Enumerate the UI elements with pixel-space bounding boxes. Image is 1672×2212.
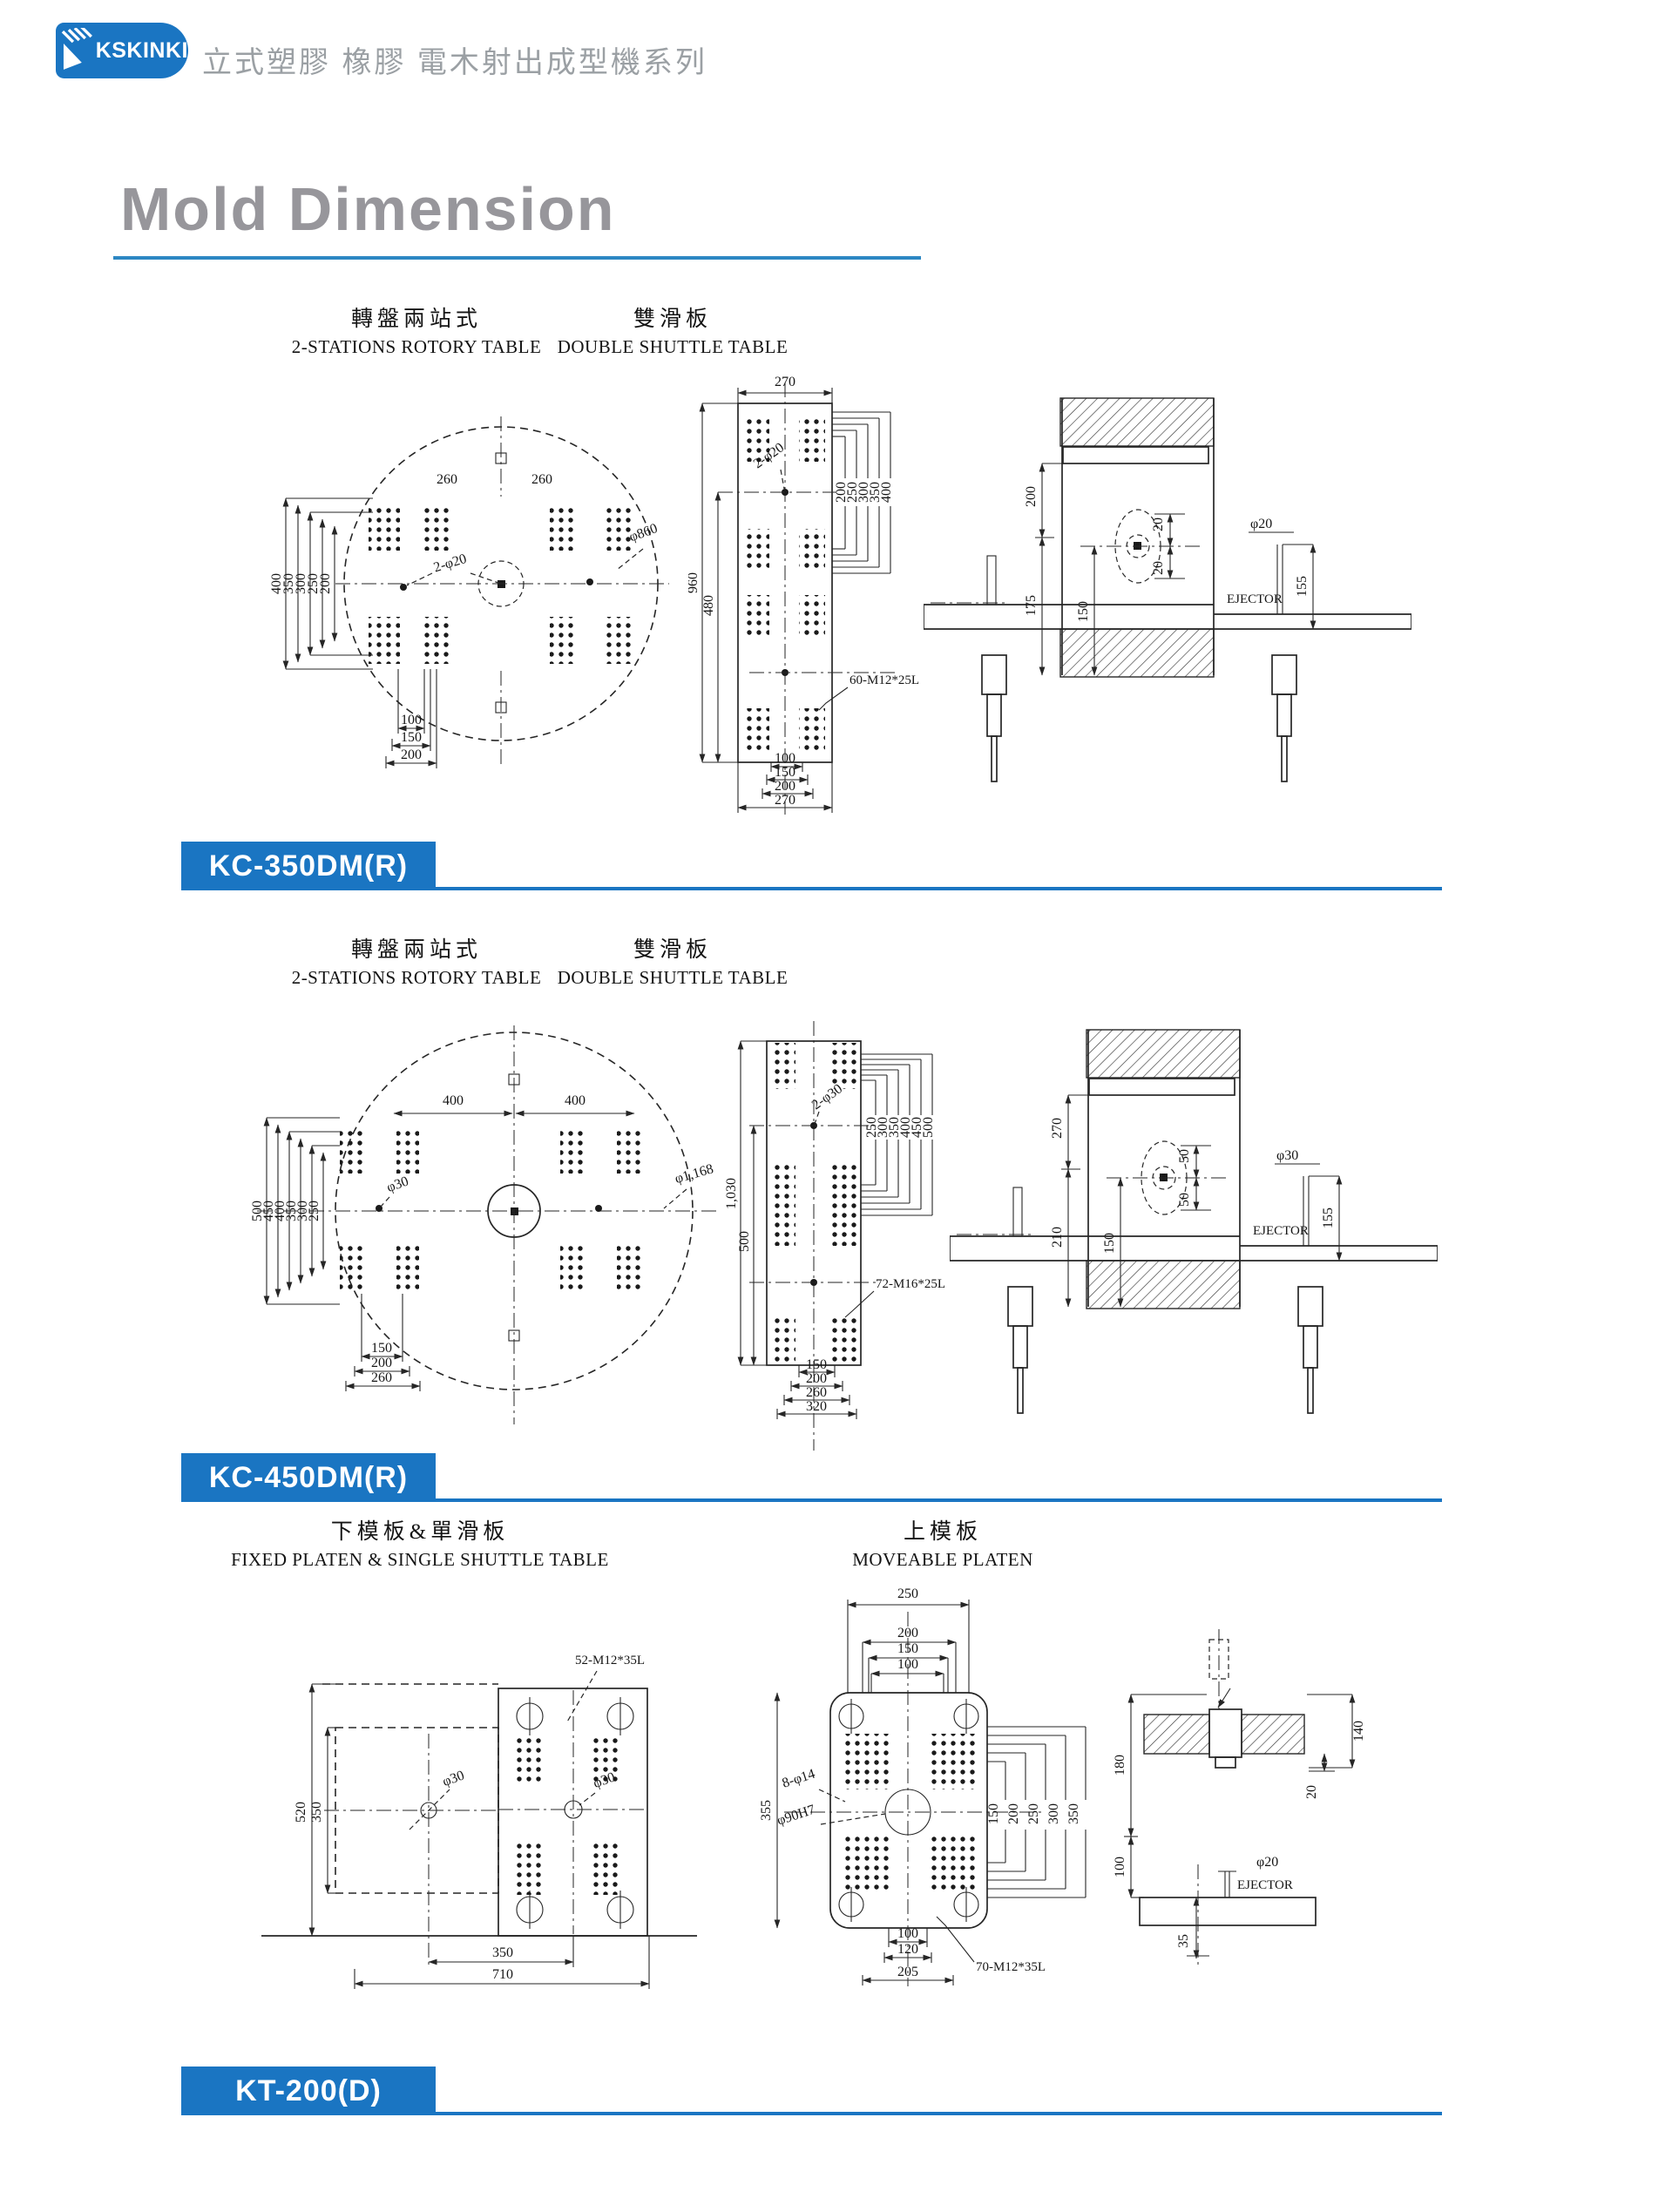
hole-note: 2-φ20 <box>432 551 469 576</box>
dim-offset-a: 50 <box>1177 1149 1192 1163</box>
dim-outer: 520 <box>294 1802 308 1823</box>
dim-right-5: 400 <box>879 482 894 503</box>
col-header-en: DOUBLE SHUTTLE TABLE <box>516 336 829 358</box>
badge-rule-3 <box>436 2112 1442 2115</box>
dim-left-outer: 1,030 <box>724 1178 739 1209</box>
dim-bottom-outer: 710 <box>492 1967 513 1982</box>
dim-bottom-2: 120 <box>897 1942 918 1957</box>
bolt-note: 52-M12*35L <box>575 1654 645 1667</box>
col-header-en: FIXED PLATEN & SINGLE SHUTTLE TABLE <box>220 1549 620 1571</box>
catalog-page: KSKINKI 立式塑膠 橡膠 電木射出成型機系列 Mold Dimension… <box>0 0 1672 2212</box>
dim-upper: 270 <box>1050 1118 1065 1139</box>
hole-note: 2-φ30 <box>809 1081 845 1113</box>
dim-top-left: 400 <box>443 1093 464 1108</box>
dim-right-4: 300 <box>1046 1803 1061 1824</box>
model-badge-text: KC-350DM(R) <box>209 849 408 883</box>
dim-bottom-4: 270 <box>775 793 795 808</box>
model-badge-kt200: KT-200(D) <box>181 2067 436 2115</box>
ejector-label: EJECTOR <box>1227 592 1283 606</box>
drawing-section-view-kt200: 140 20 180 100 φ20 EJECTOR 35 <box>1107 1612 1490 1986</box>
header-tagline: 立式塑膠 橡膠 電木射出成型機系列 <box>202 38 707 81</box>
drawing-fixed-platen-kt200: 52-M12*35L 520 350 φ30 φ30 350 710 <box>209 1603 749 2039</box>
ejector-label: EJECTOR <box>1237 1878 1293 1892</box>
dim-side: 355 <box>759 1800 774 1821</box>
dim-left-5: 200 <box>318 573 333 594</box>
ejector-dia: φ20 <box>1256 1855 1278 1870</box>
center-bore-note: φ90H7 <box>775 1803 817 1829</box>
platen-geometry <box>261 1671 697 1989</box>
bolt-note: 70-M12*35L <box>976 1960 1046 1974</box>
dim-top-3: 150 <box>897 1641 918 1656</box>
dim-top-2: 200 <box>897 1626 918 1640</box>
col-header-zh: 上模板 <box>786 1514 1100 1546</box>
dim-top: 270 <box>775 375 795 389</box>
dim-right-5: 350 <box>1066 1803 1081 1824</box>
dim-offset-a: 20 <box>1151 517 1166 531</box>
dim-bottom-3: 205 <box>897 1965 918 1979</box>
model-badge-kc450: KC-450DM(R) <box>181 1453 436 1502</box>
rotary-geometry <box>257 1025 719 1424</box>
col-header-zh: 雙滑板 <box>516 301 829 333</box>
col-header-zh: 雙滑板 <box>516 932 829 964</box>
ejector-dia: φ20 <box>1250 517 1272 531</box>
dim-bottom-2: 200 <box>371 1356 392 1370</box>
dim-right-3: 250 <box>1026 1803 1041 1824</box>
dim-top-1: 250 <box>897 1586 918 1601</box>
rotary-geometry <box>286 416 669 768</box>
dim-bottom-3: 260 <box>371 1370 392 1385</box>
dim-top-right: 400 <box>565 1093 586 1108</box>
hole-note: φ30 <box>385 1174 411 1195</box>
shuttle-geometry <box>702 382 897 815</box>
dim-upper: 200 <box>1024 486 1039 507</box>
ejector-label: EJECTOR <box>1253 1224 1309 1238</box>
dim-bottom-3: 200 <box>775 779 795 794</box>
dim-offset-b: 50 <box>1177 1193 1192 1207</box>
dim-bottom-1: 150 <box>806 1357 827 1372</box>
kskinki-logo: KSKINKI <box>56 23 188 78</box>
model-badge-text: KT-200(D) <box>235 2074 382 2108</box>
dim-gap: 20 <box>1304 1785 1319 1799</box>
dim-top-4: 100 <box>897 1657 918 1672</box>
dim-inner: 350 <box>309 1802 324 1823</box>
dim-right-6: 500 <box>921 1117 936 1138</box>
bolt-note: 60-M12*25L <box>850 673 919 687</box>
dim-mid: 175 <box>1024 595 1039 616</box>
dim-bottom-4: 320 <box>806 1399 827 1414</box>
dim-left-6: 250 <box>307 1201 322 1221</box>
col-header-shuttle-1: 雙滑板 DOUBLE SHUTTLE TABLE <box>516 301 829 358</box>
dim-stroke: 155 <box>1295 576 1310 597</box>
holes-note: 8-φ14 <box>781 1767 817 1791</box>
section-geometry <box>950 1030 1438 1413</box>
col-header-zh: 下模板&單滑板 <box>220 1514 620 1546</box>
dim-bottom-2: 150 <box>775 765 795 780</box>
dim-left-inner: 480 <box>701 595 716 616</box>
dim-upper: 180 <box>1113 1755 1127 1776</box>
dim-stroke: 155 <box>1321 1207 1336 1228</box>
badge-rule-1 <box>436 887 1442 890</box>
dim-bottom-2: 200 <box>806 1371 827 1386</box>
model-badge-text: KC-450DM(R) <box>209 1461 408 1495</box>
dim-right-2: 200 <box>1006 1803 1021 1824</box>
col-header-fixed-platen: 下模板&單滑板 FIXED PLATEN & SINGLE SHUTTLE TA… <box>220 1514 620 1571</box>
dim-mid: 210 <box>1050 1227 1065 1248</box>
drawing-section-view-kc450: 270 210 150 50 50 φ30 155 EJECTOR <box>950 1015 1438 1446</box>
dim-inner: 150 <box>1076 601 1091 622</box>
logo-stripes-icon <box>61 28 96 73</box>
dim-bottom-1: 100 <box>401 713 422 727</box>
drawing-rotary-table-kc450: 400 400 500 450 400 350 300 250 φ30 φ1,1… <box>174 1015 723 1451</box>
dim-offset-b: 20 <box>1151 561 1166 575</box>
dim-lower: 100 <box>1113 1857 1127 1877</box>
col-header-en: DOUBLE SHUTTLE TABLE <box>516 967 829 989</box>
logo-text: KSKINKI <box>96 38 188 64</box>
col-header-shuttle-2: 雙滑板 DOUBLE SHUTTLE TABLE <box>516 932 829 989</box>
dim-bottom-1: 100 <box>775 751 795 766</box>
hole-note-left: φ30 <box>441 1768 467 1789</box>
dim-top-left: 260 <box>437 472 457 487</box>
col-header-en: MOVEABLE PLATEN <box>786 1549 1100 1571</box>
dim-bottom-1: 100 <box>897 1926 918 1941</box>
bolt-note: 72-M16*25L <box>876 1277 945 1291</box>
ejector-dia: φ30 <box>1276 1148 1298 1163</box>
dim-bottom-inner: 350 <box>492 1945 513 1960</box>
dim-plate: 140 <box>1351 1721 1366 1742</box>
drawing-section-view-kc350: 200 175 150 20 20 φ20 155 EJECTOR <box>924 383 1411 810</box>
dim-top-right: 260 <box>531 472 552 487</box>
dim-right-1: 150 <box>986 1803 1001 1824</box>
dim-bottom-1: 150 <box>371 1341 392 1356</box>
dim-bottom-3: 200 <box>401 747 422 762</box>
platen-geometry <box>777 1600 1086 1986</box>
dim-bottom-2: 150 <box>401 730 422 745</box>
model-badge-kc350: KC-350DM(R) <box>181 842 436 890</box>
drawing-shuttle-table-kc450: 1,030 500 250 300 350 400 450 500 2-φ30 … <box>697 1011 985 1472</box>
col-header-moveable-platen: 上模板 MOVEABLE PLATEN <box>786 1514 1100 1571</box>
dim-left-inner: 500 <box>737 1231 752 1252</box>
page-title: Mold Dimension <box>120 174 616 244</box>
dim-bottom-3: 260 <box>806 1385 827 1400</box>
section-geometry <box>924 398 1411 781</box>
drawing-rotary-table-kc350: 400 350 300 250 200 260 260 2-φ20 φ860 1… <box>270 392 671 793</box>
drawing-moveable-platen-kt200: 250 200 150 100 355 8-φ14 φ90H7 150 200 … <box>758 1577 1107 2012</box>
dim-left-outer: 960 <box>688 572 701 593</box>
dim-base: 35 <box>1176 1934 1191 1948</box>
badge-rule-2 <box>436 1498 1442 1502</box>
dim-inner: 150 <box>1102 1233 1117 1254</box>
title-rule <box>113 256 921 260</box>
